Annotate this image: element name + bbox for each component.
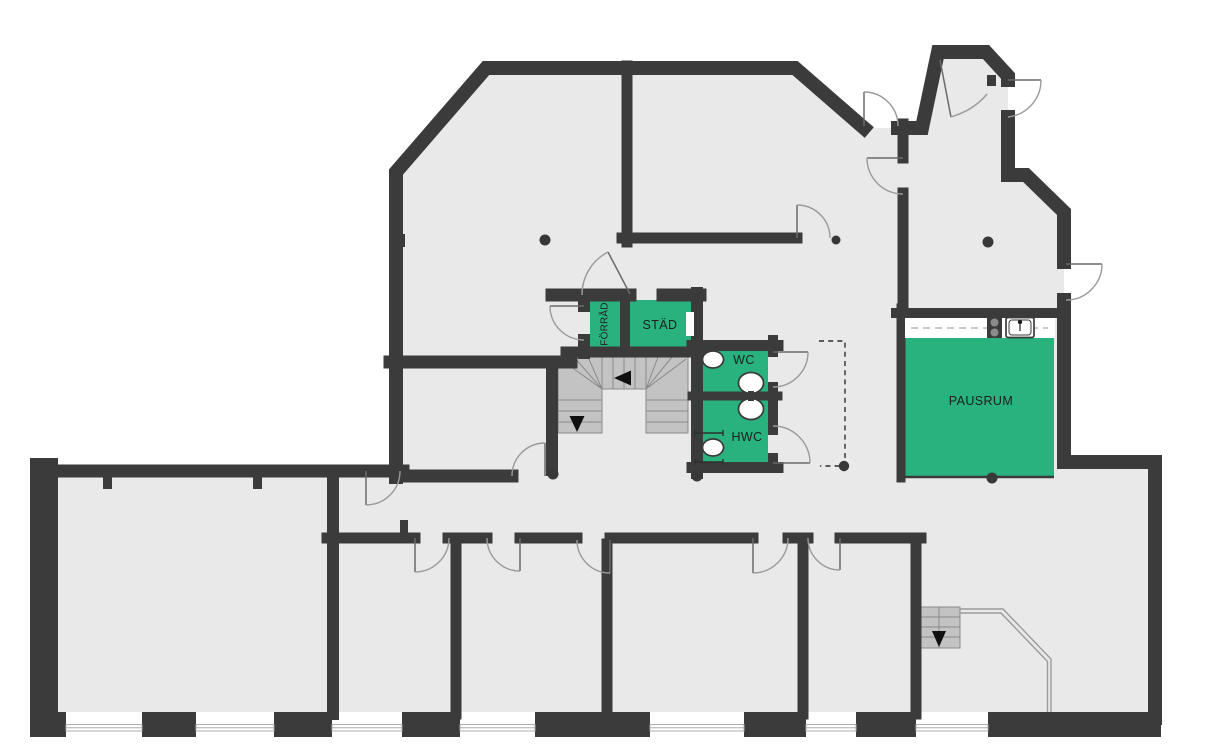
- wall-nub: [396, 234, 405, 247]
- toilet-icon: [693, 439, 724, 456]
- column-dot: [983, 237, 994, 248]
- door-arc: [1066, 264, 1102, 300]
- floor-plan-svg: FÖRRÅD STÄD WC HWC PAUSRUM: [0, 0, 1206, 751]
- toilet-icon: [693, 351, 724, 368]
- kitchenette: [905, 316, 1055, 338]
- wall-end-cap: [692, 471, 703, 482]
- room-label-pausrum: PAUSRUM: [949, 394, 1013, 408]
- column-dot: [540, 235, 551, 246]
- room-label-wc: WC: [733, 353, 755, 367]
- column-dot: [987, 473, 998, 484]
- door-hinge-dot: [832, 236, 841, 245]
- stad-niche: [686, 312, 694, 336]
- floor-plan: FÖRRÅD STÄD WC HWC PAUSRUM: [0, 0, 1206, 751]
- room-label-hwc: HWC: [731, 430, 762, 444]
- wall-stub: [253, 477, 262, 489]
- windows: [66, 712, 988, 737]
- bottom-wall-band: [30, 712, 1161, 737]
- window-sills: [66, 725, 988, 732]
- room-label-stad: STÄD: [643, 318, 678, 332]
- outer-wall-left: [30, 458, 58, 732]
- door-arc: [864, 92, 898, 126]
- room-label-forrad: FÖRRÅD: [598, 302, 611, 345]
- wall-end-cap: [548, 469, 559, 480]
- door-jamb-stub: [987, 75, 996, 86]
- door-jamb-stub: [400, 520, 408, 534]
- wall-stub: [103, 477, 112, 489]
- sink-icon: [1006, 318, 1034, 338]
